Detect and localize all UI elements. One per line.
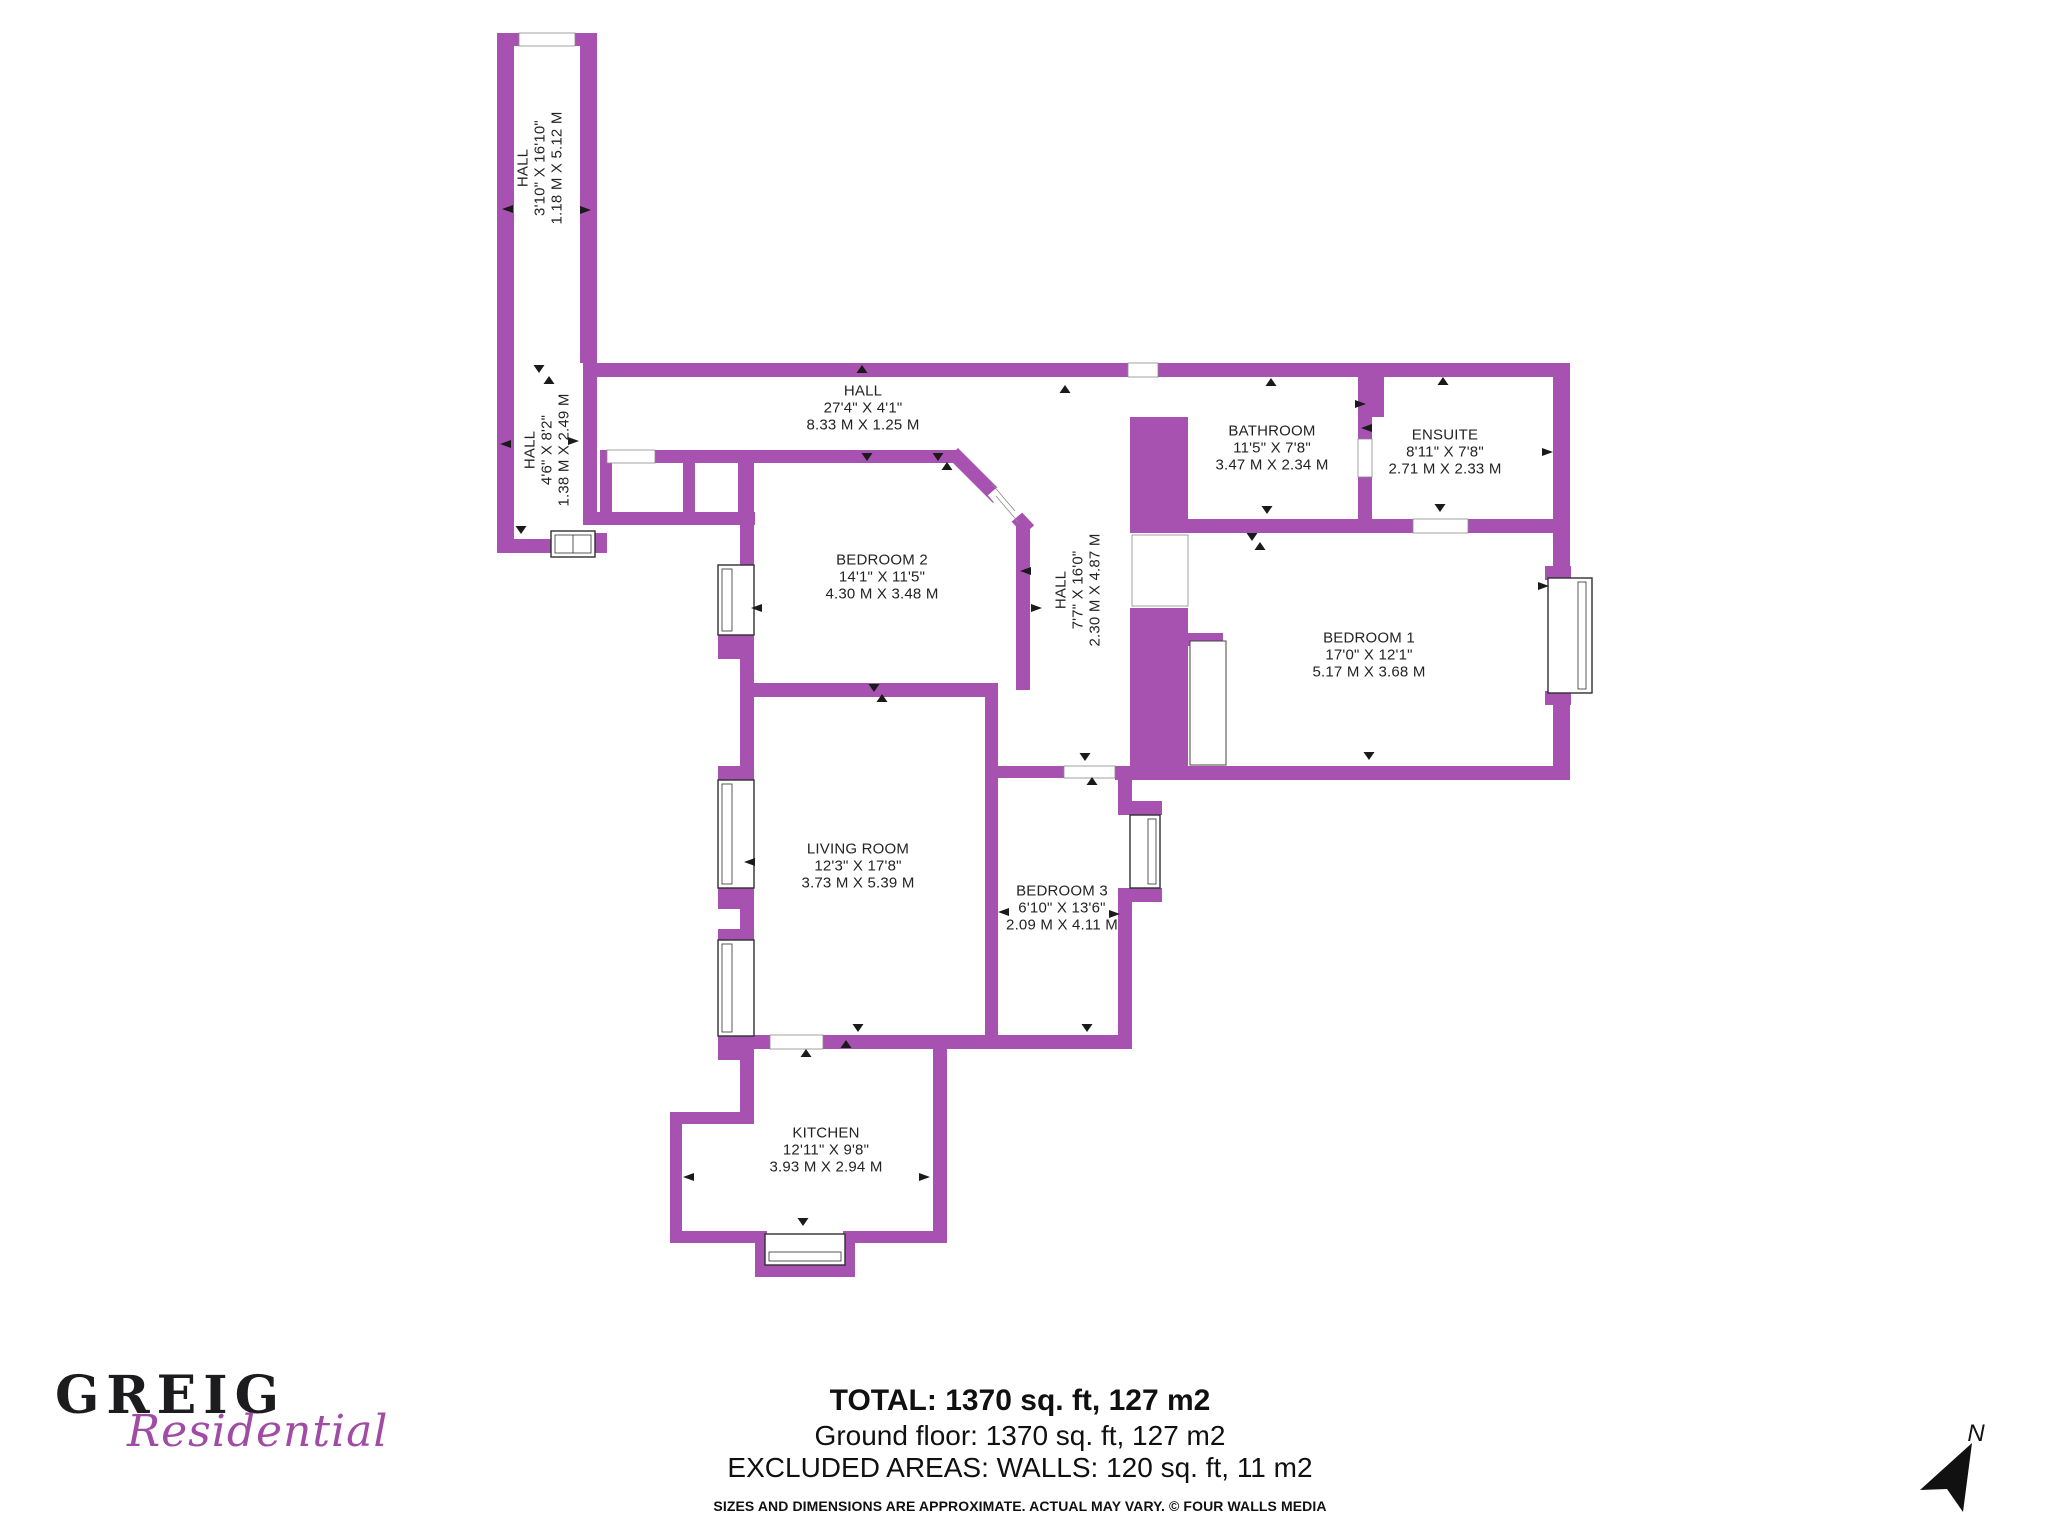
floorplan-drawing xyxy=(0,0,2048,1536)
measure-arrow-icon xyxy=(1060,385,1071,393)
measure-arrow-icon xyxy=(516,526,527,534)
room-label-bedroom1: BEDROOM 1 17'0" X 12'1" 5.17 M X 3.68 M xyxy=(1312,630,1425,681)
room-label-kitchen: KITCHEN 12'11" X 9'8" 3.93 M X 2.94 M xyxy=(769,1125,882,1176)
measure-arrow-icon xyxy=(853,1024,864,1032)
room-dims-metric: 2.30 M X 4.87 M xyxy=(1087,533,1104,646)
room-label-hall-main: HALL 27'4" X 4'1" 8.33 M X 1.25 M xyxy=(806,383,919,434)
measure-arrow-icon xyxy=(544,376,555,384)
measure-arrow-icon xyxy=(942,462,953,470)
room-dims-imperial: 14'1" X 11'5" xyxy=(825,569,938,586)
ground-floor-area-text: Ground floor: 1370 sq. ft, 127 m2 xyxy=(815,1420,1226,1452)
room-dims-metric: 2.09 M X 4.11 M xyxy=(1006,917,1118,934)
room-dims-imperial: 11'5" X 7'8" xyxy=(1215,440,1328,457)
room-dims-imperial: 4'6" X 8'2" xyxy=(539,393,556,506)
measure-arrow-icon xyxy=(1080,753,1091,761)
room-name: HALL xyxy=(522,393,539,506)
total-area-text: TOTAL: 1370 sq. ft, 127 m2 xyxy=(830,1384,1211,1418)
measure-arrow-icon xyxy=(1542,448,1553,456)
room-dims-metric: 1.18 M X 5.12 M xyxy=(549,111,566,224)
room-name: KITCHEN xyxy=(769,1125,882,1142)
room-dims-imperial: 3'10" X 16'10" xyxy=(532,111,549,224)
measure-arrow-icon xyxy=(919,1173,930,1181)
room-label-living: LIVING ROOM 12'3" X 17'8" 3.73 M X 5.39 … xyxy=(801,841,914,892)
room-label-hall-2: HALL 4'6" X 8'2" 1.38 M X 2.49 M xyxy=(522,393,573,506)
measure-arrow-icon xyxy=(1031,604,1042,612)
room-dims-imperial: 17'0" X 12'1" xyxy=(1312,647,1425,664)
room-dims-imperial: 8'11" X 7'8" xyxy=(1388,444,1501,461)
measure-arrow-icon xyxy=(1255,542,1266,550)
room-dims-metric: 1.38 M X 2.49 M xyxy=(556,393,573,506)
measure-arrow-icon xyxy=(534,365,545,373)
room-label-bedroom3: BEDROOM 3 6'10" X 13'6" 2.09 M X 4.11 M xyxy=(1006,883,1118,934)
measure-arrow-icon xyxy=(1435,504,1446,512)
room-name: BEDROOM 3 xyxy=(1006,883,1118,900)
measure-arrow-icon xyxy=(683,1173,694,1181)
room-name: HALL xyxy=(806,383,919,400)
room-label-bathroom: BATHROOM 11'5" X 7'8" 3.47 M X 2.34 M xyxy=(1215,423,1328,474)
room-dims-imperial: 12'3" X 17'8" xyxy=(801,858,914,875)
room-name: HALL xyxy=(515,111,532,224)
room-dims-imperial: 7'7" X 16'0" xyxy=(1070,533,1087,646)
room-name: HALL xyxy=(1053,533,1070,646)
measure-arrow-icon xyxy=(1247,533,1258,541)
logo-secondary-text: Residential xyxy=(127,1410,388,1454)
room-dims-metric: 3.73 M X 5.39 M xyxy=(801,875,914,892)
disclaimer-text: SIZES AND DIMENSIONS ARE APPROXIMATE. AC… xyxy=(713,1497,1326,1515)
excluded-areas-text: EXCLUDED AREAS: WALLS: 120 sq. ft, 11 m2 xyxy=(727,1452,1312,1484)
measure-arrows-group xyxy=(500,205,1553,1226)
room-name: BEDROOM 2 xyxy=(825,552,938,569)
room-dims-metric: 5.17 M X 3.68 M xyxy=(1312,664,1425,681)
room-label-ensuite: ENSUITE 8'11" X 7'8" 2.71 M X 2.33 M xyxy=(1388,427,1501,478)
measure-arrow-icon xyxy=(1262,506,1273,514)
north-arrow-icon xyxy=(1920,1443,1972,1512)
room-dims-metric: 4.30 M X 3.48 M xyxy=(825,586,938,603)
measure-arrow-icon xyxy=(1364,752,1375,760)
room-name: BATHROOM xyxy=(1215,423,1328,440)
room-dims-imperial: 6'10" X 13'6" xyxy=(1006,900,1118,917)
room-dims-imperial: 27'4" X 4'1" xyxy=(806,400,919,417)
room-label-bedroom2: BEDROOM 2 14'1" X 11'5" 4.30 M X 3.48 M xyxy=(825,552,938,603)
floorplan-page: HALL 3'10" X 16'10" 1.18 M X 5.12 M HALL… xyxy=(0,0,2048,1536)
measure-arrow-icon xyxy=(801,1049,812,1057)
room-dims-metric: 2.71 M X 2.33 M xyxy=(1388,461,1501,478)
measure-arrow-icon xyxy=(798,1218,809,1226)
agency-logo: GREIG Residential xyxy=(55,1370,388,1454)
room-dims-imperial: 12'11" X 9'8" xyxy=(769,1142,882,1159)
room-dims-metric: 3.47 M X 2.34 M xyxy=(1215,457,1328,474)
room-dims-metric: 8.33 M X 1.25 M xyxy=(806,417,919,434)
room-name: BEDROOM 1 xyxy=(1312,630,1425,647)
room-name: LIVING ROOM xyxy=(801,841,914,858)
room-dims-metric: 3.93 M X 2.94 M xyxy=(769,1159,882,1176)
measure-arrow-icon xyxy=(1266,378,1277,386)
room-name: ENSUITE xyxy=(1388,427,1501,444)
north-label: N xyxy=(1967,1420,1984,1448)
room-label-hall-top: HALL 3'10" X 16'10" 1.18 M X 5.12 M xyxy=(515,111,566,224)
room-label-hall-mid: HALL 7'7" X 16'0" 2.30 M X 4.87 M xyxy=(1053,533,1104,646)
measure-arrow-icon xyxy=(1438,377,1449,385)
measure-arrow-icon xyxy=(1082,1024,1093,1032)
